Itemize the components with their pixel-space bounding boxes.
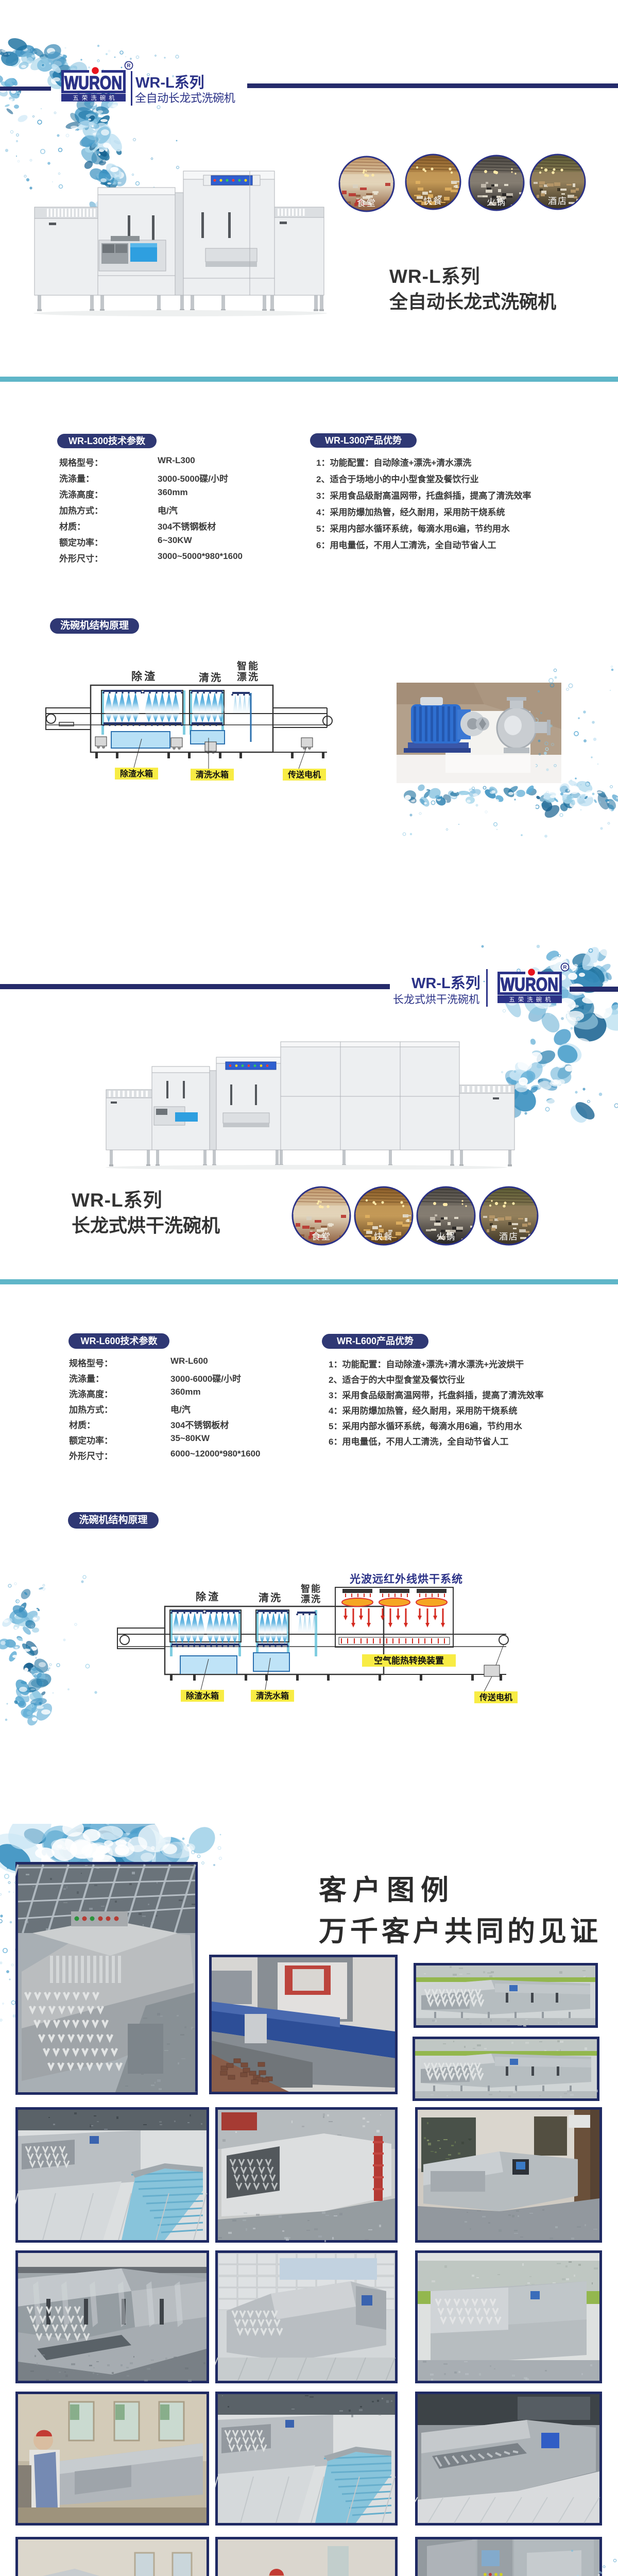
svg-text:R: R	[563, 965, 567, 971]
svg-text:光波远红外线烘干系统: 光波远红外线烘干系统	[349, 1573, 463, 1585]
svg-text:漂洗: 漂洗	[301, 1594, 321, 1604]
svg-text:快餐: 快餐	[423, 196, 443, 206]
svg-text:食堂: 食堂	[357, 198, 376, 208]
svg-text:除渣: 除渣	[196, 1590, 220, 1603]
svg-text:快餐: 快餐	[374, 1232, 393, 1242]
svg-text:清洗水箱: 清洗水箱	[196, 770, 229, 779]
svg-text:传送电机: 传送电机	[287, 770, 321, 779]
svg-text:漂洗: 漂洗	[237, 671, 260, 683]
svg-text:传送电机: 传送电机	[479, 1692, 512, 1702]
svg-text:WURON: WURON	[64, 72, 122, 93]
svg-text:食堂: 食堂	[312, 1232, 331, 1242]
svg-text:除渣水箱: 除渣水箱	[120, 769, 153, 778]
svg-text:火锅: 火锅	[487, 197, 506, 207]
svg-text:R: R	[127, 63, 131, 69]
svg-text:清洗: 清洗	[199, 671, 222, 684]
svg-text:除渣: 除渣	[131, 670, 157, 683]
svg-text:火锅: 火锅	[436, 1232, 456, 1242]
svg-text:五荣洗碗机: 五荣洗碗机	[509, 996, 554, 1003]
svg-text:智能: 智能	[301, 1583, 321, 1594]
svg-text:清洗水箱: 清洗水箱	[256, 1691, 289, 1701]
svg-text:WURON: WURON	[501, 974, 558, 995]
svg-text:酒店: 酒店	[548, 196, 568, 206]
svg-text:五荣洗碗机: 五荣洗碗机	[73, 94, 118, 101]
svg-text:空气能热转换装置: 空气能热转换装置	[374, 1655, 444, 1666]
svg-text:酒店: 酒店	[499, 1232, 519, 1242]
svg-text:清洗: 清洗	[259, 1591, 282, 1604]
svg-text:智能: 智能	[237, 660, 260, 672]
svg-text:除渣水箱: 除渣水箱	[186, 1691, 219, 1701]
